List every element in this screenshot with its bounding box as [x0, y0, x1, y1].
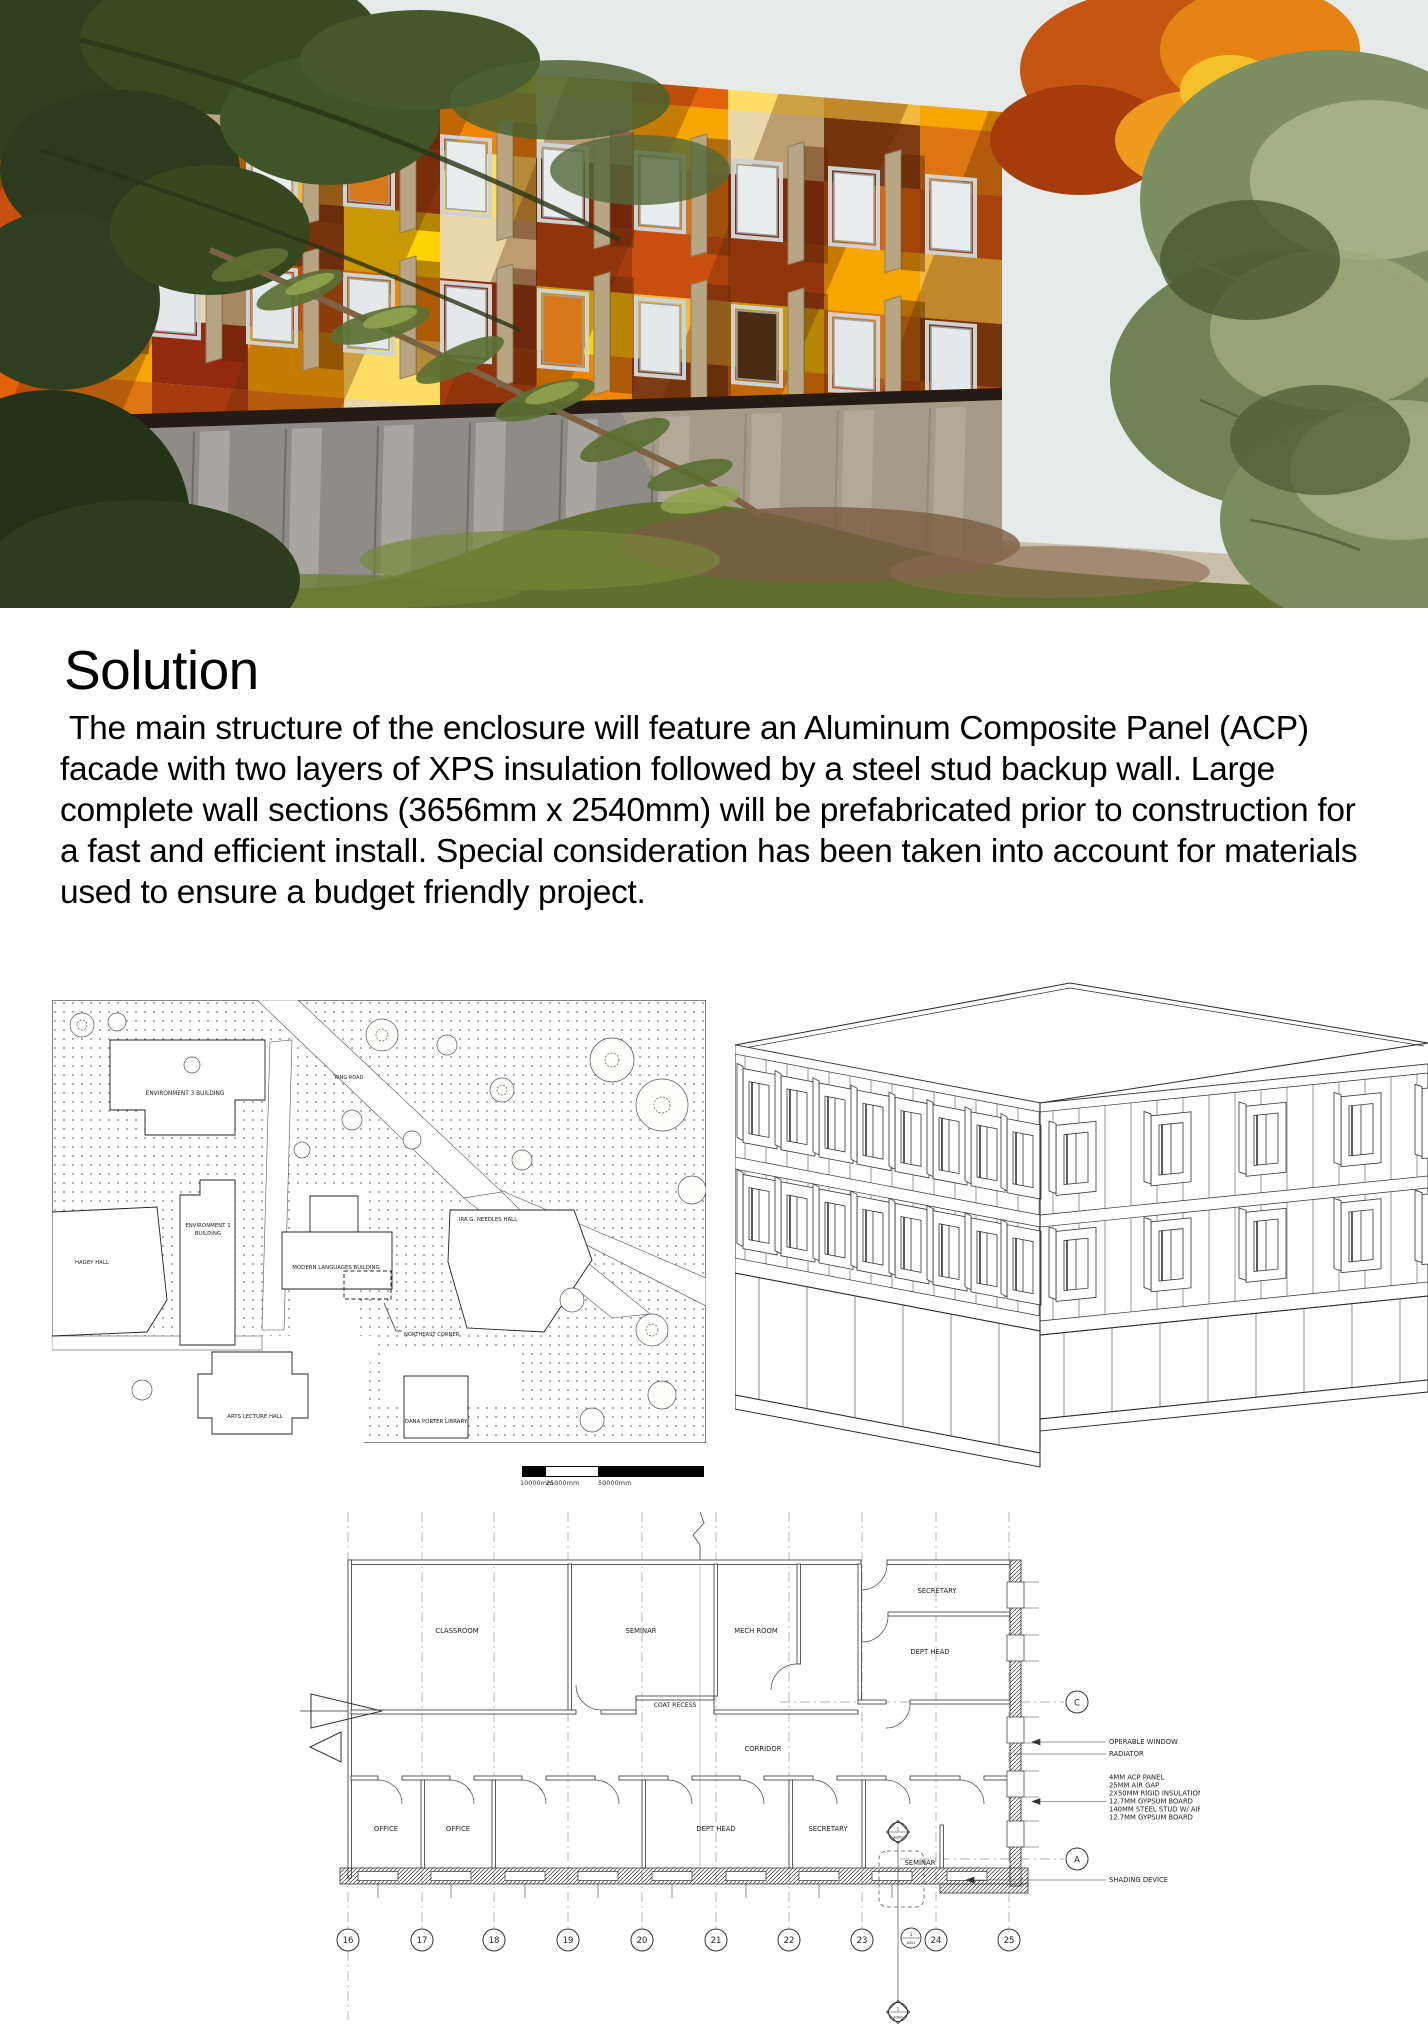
assembly-line-3: 2X50MM RIGID INSULATION — [1109, 1790, 1200, 1798]
assembly-line-1: 4MM ACP PANEL — [1109, 1774, 1164, 1782]
grid-bubble-18: 18 — [489, 1936, 500, 1946]
document-page: Solution The main structure of the enclo… — [0, 0, 1428, 2028]
grid-bubble-a: A — [1074, 1856, 1080, 1866]
site-label-ring-road: RING ROAD — [335, 1075, 364, 1081]
section-marker-bottom: 1 A300 — [887, 2001, 910, 2024]
scale-bar — [522, 1466, 704, 1477]
site-label-modern-languages: MODERN LANGUAGES BUILDING — [292, 1265, 379, 1271]
scale-bar-segment — [545, 1466, 599, 1477]
svg-text:1: 1 — [897, 2007, 900, 2012]
assembly-line-4: 12.7MM GYPSUM BOARD — [1109, 1798, 1193, 1806]
svg-text:1: 1 — [897, 1827, 900, 1832]
site-label-northeast-corner: NORTHEAST CORNER — [404, 1332, 460, 1338]
site-plan-figure: ENVIRONMENT 3 BUILDING RING ROAD ENVIRON… — [52, 1000, 706, 1443]
room-label-office-2: OFFICE — [446, 1825, 470, 1833]
site-label-arts-lecture: ARTS LECTURE HALL — [227, 1414, 283, 1420]
site-label-environment3: ENVIRONMENT 3 BUILDING — [146, 1091, 225, 1097]
svg-text:A300: A300 — [893, 2016, 903, 2020]
svg-text:A300: A300 — [893, 1836, 903, 1840]
room-label-seminar: SEMINAR — [626, 1627, 657, 1635]
svg-text:A301: A301 — [907, 1941, 916, 1945]
axonometric-figure — [735, 975, 1428, 1490]
page-title: Solution — [64, 638, 259, 702]
grid-bubble-21: 21 — [711, 1936, 722, 1946]
room-label-classroom: CLASSROOM — [435, 1627, 478, 1635]
label-coat-recess: COAT RECESS — [654, 1702, 697, 1709]
section-marker-top: 1 A300 — [887, 1821, 910, 1844]
grid-bubbles: 16 17 18 19 20 21 22 23 24 25 C A — [337, 1691, 1088, 1951]
grid-bubble-25: 25 — [1004, 1936, 1015, 1946]
site-label-dana-porter: DANA PORTER LIBRARY — [405, 1419, 468, 1425]
site-label-hagey: HAGEY HALL — [75, 1260, 109, 1266]
grid-bubble-16: 16 — [343, 1936, 354, 1946]
assembly-line-2: 25MM AIR GAP — [1109, 1782, 1159, 1790]
grid-bubble-22: 22 — [784, 1936, 795, 1946]
grid-bubble-20: 20 — [637, 1936, 648, 1946]
assembly-line-6: 12.7MM GYPSUM BOARD — [1109, 1814, 1193, 1822]
site-label-ira-needles: IRA G. NEEDLES HALL — [459, 1217, 517, 1223]
grid-bubble-24: 24 — [931, 1936, 942, 1946]
exterior-walls — [340, 1560, 1039, 1898]
scale-bar-segment — [522, 1466, 545, 1477]
room-label-secretary-bottom: SECRETARY — [808, 1825, 848, 1833]
grid-bubble-17: 17 — [417, 1936, 428, 1946]
room-label-office-1: OFFICE — [374, 1825, 398, 1833]
grid-bubble-19: 19 — [563, 1936, 574, 1946]
section-cut-line — [693, 1512, 898, 2003]
left-facade — [735, 1045, 1041, 1467]
label-corridor: CORRIDOR — [745, 1745, 782, 1753]
grid-bubble-c: C — [1074, 1699, 1080, 1709]
scale-bar-segment — [599, 1466, 704, 1477]
room-label-secretary-top: SECRETARY — [917, 1587, 957, 1595]
room-label-mech-room: MECH ROOM — [734, 1627, 778, 1635]
solution-paragraph: The main structure of the enclosure will… — [60, 708, 1362, 913]
door-swings — [378, 1564, 984, 1804]
room-label-depthead-top: DEPT HEAD — [910, 1648, 949, 1656]
room-label-seminar-bottom: SEMINAR — [905, 1859, 936, 1867]
callout-radiator: RADIATOR — [1109, 1750, 1144, 1758]
assembly-line-5: 140MM STEEL STUD W/ AIR — [1109, 1806, 1200, 1814]
site-label-environment1-line1: ENVIRONMENT 1 — [185, 1223, 230, 1229]
section-arrow — [300, 1694, 382, 1762]
svg-text:1: 1 — [910, 1932, 913, 1937]
callout-shading-device: SHADING DEVICE — [1109, 1876, 1168, 1884]
hero-render-image — [0, 0, 1428, 608]
callout-operable-window: OPERABLE WINDOW — [1109, 1738, 1178, 1746]
grid-bubble-23: 23 — [857, 1936, 868, 1946]
right-facade — [1040, 1061, 1428, 1431]
detail-callout-circle: 1 A301 — [901, 1928, 921, 1948]
site-label-environment1-line2: BUILDING — [195, 1231, 221, 1237]
room-label-depthead-bottom: DEPT HEAD — [696, 1825, 735, 1833]
floor-plan-figure: 1 A300 1 A300 1 A301 — [300, 1485, 1200, 2028]
